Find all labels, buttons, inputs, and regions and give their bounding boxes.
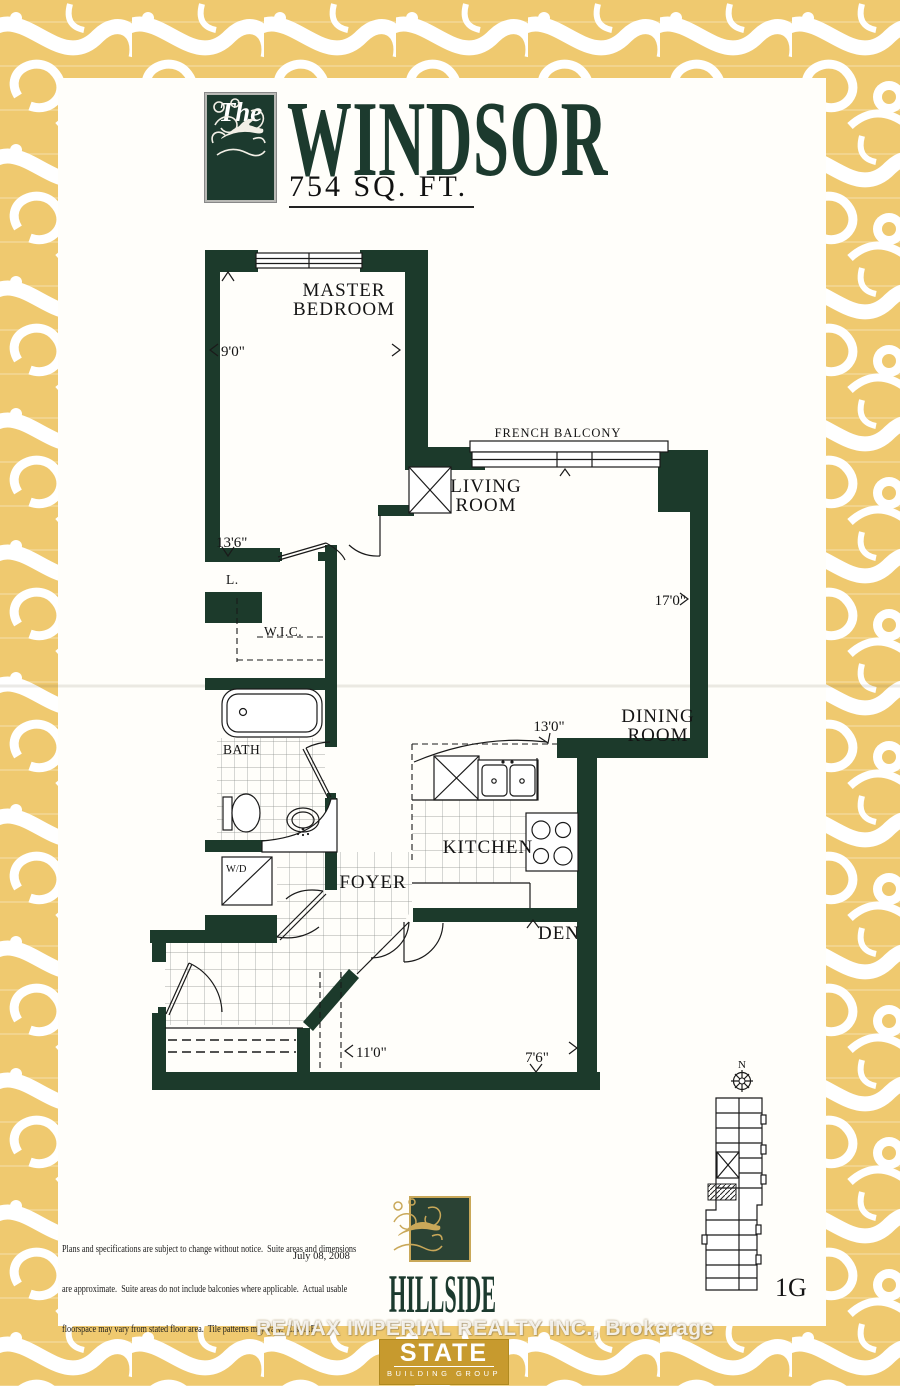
- north-label: N: [738, 1059, 746, 1071]
- disclaimer-line: are approximate. Suite areas do not incl…: [62, 1283, 398, 1296]
- crest-bird-ornament-icon: [207, 95, 270, 163]
- label-french-balcony: FRENCH BALCONY: [495, 426, 622, 440]
- french-balcony-window: [470, 441, 668, 476]
- keyplan: N: [702, 1059, 807, 1302]
- bathtub: [222, 689, 322, 737]
- label-linen-closet: L.: [226, 572, 239, 587]
- hillside-emblem-icon: [409, 1196, 471, 1262]
- kitchen-fridge: [434, 756, 479, 800]
- label-bath: BATH: [223, 742, 260, 757]
- suite-area-label: 754 SQ. FT.: [289, 170, 474, 208]
- label-dining-room-line1: DINING: [621, 706, 695, 727]
- toilet: [223, 794, 260, 832]
- compass-icon: N: [731, 1059, 753, 1092]
- master-bedroom-window: [256, 253, 362, 268]
- dim-living-depth: 17'0": [655, 593, 686, 609]
- unit-location-marker: [708, 1184, 736, 1200]
- state-subtitle: BUILDING GROUP: [380, 1367, 508, 1380]
- brokerage-watermark: RE/MAX IMPERIAL REALTY INC., Brokerage: [256, 1317, 676, 1341]
- state-wordmark: STATE: [380, 1340, 508, 1366]
- kitchen-stove: [526, 813, 578, 871]
- disclaimer-text: Plans and specifications are subject to …: [62, 1216, 398, 1363]
- shaft-box: [409, 467, 451, 513]
- label-foyer: FOYER: [339, 872, 406, 893]
- dim-master-depth: 13'6": [216, 535, 247, 551]
- unit-code-label: 1G: [775, 1273, 807, 1302]
- label-master-bedroom-line1: MASTER: [302, 280, 385, 301]
- label-den: DEN: [538, 923, 580, 944]
- state-building-group-logo: STATE BUILDING GROUP: [380, 1340, 508, 1384]
- label-master-bedroom-line2: BEDROOM: [293, 299, 395, 320]
- dim-den-width: 7'6": [525, 1050, 549, 1066]
- label-kitchen: KITCHEN: [443, 837, 533, 858]
- dim-master-width: 9'0": [221, 344, 245, 360]
- label-dining-room-line2: ROOM: [627, 725, 688, 746]
- label-washer-dryer: W/D: [226, 864, 247, 875]
- hillside-wordmark: HILLSIDE: [389, 1267, 431, 1321]
- label-wic: W.I.C.: [264, 624, 302, 639]
- floorplan-sheet: MASTER BEDROOM LIVING ROOM FRENCH BALCON…: [0, 0, 900, 1386]
- label-living-room-line1: LIVING: [450, 476, 521, 497]
- kitchen-sink: [478, 760, 538, 800]
- dim-kitchen-width: 13'0": [533, 719, 564, 735]
- dim-hall-width: 11'0": [356, 1045, 387, 1061]
- keyplan-building: [702, 1098, 766, 1290]
- builder-crest: The: [205, 93, 276, 202]
- plan-date: July 08, 2008: [293, 1251, 350, 1262]
- label-living-room-line2: ROOM: [455, 495, 516, 516]
